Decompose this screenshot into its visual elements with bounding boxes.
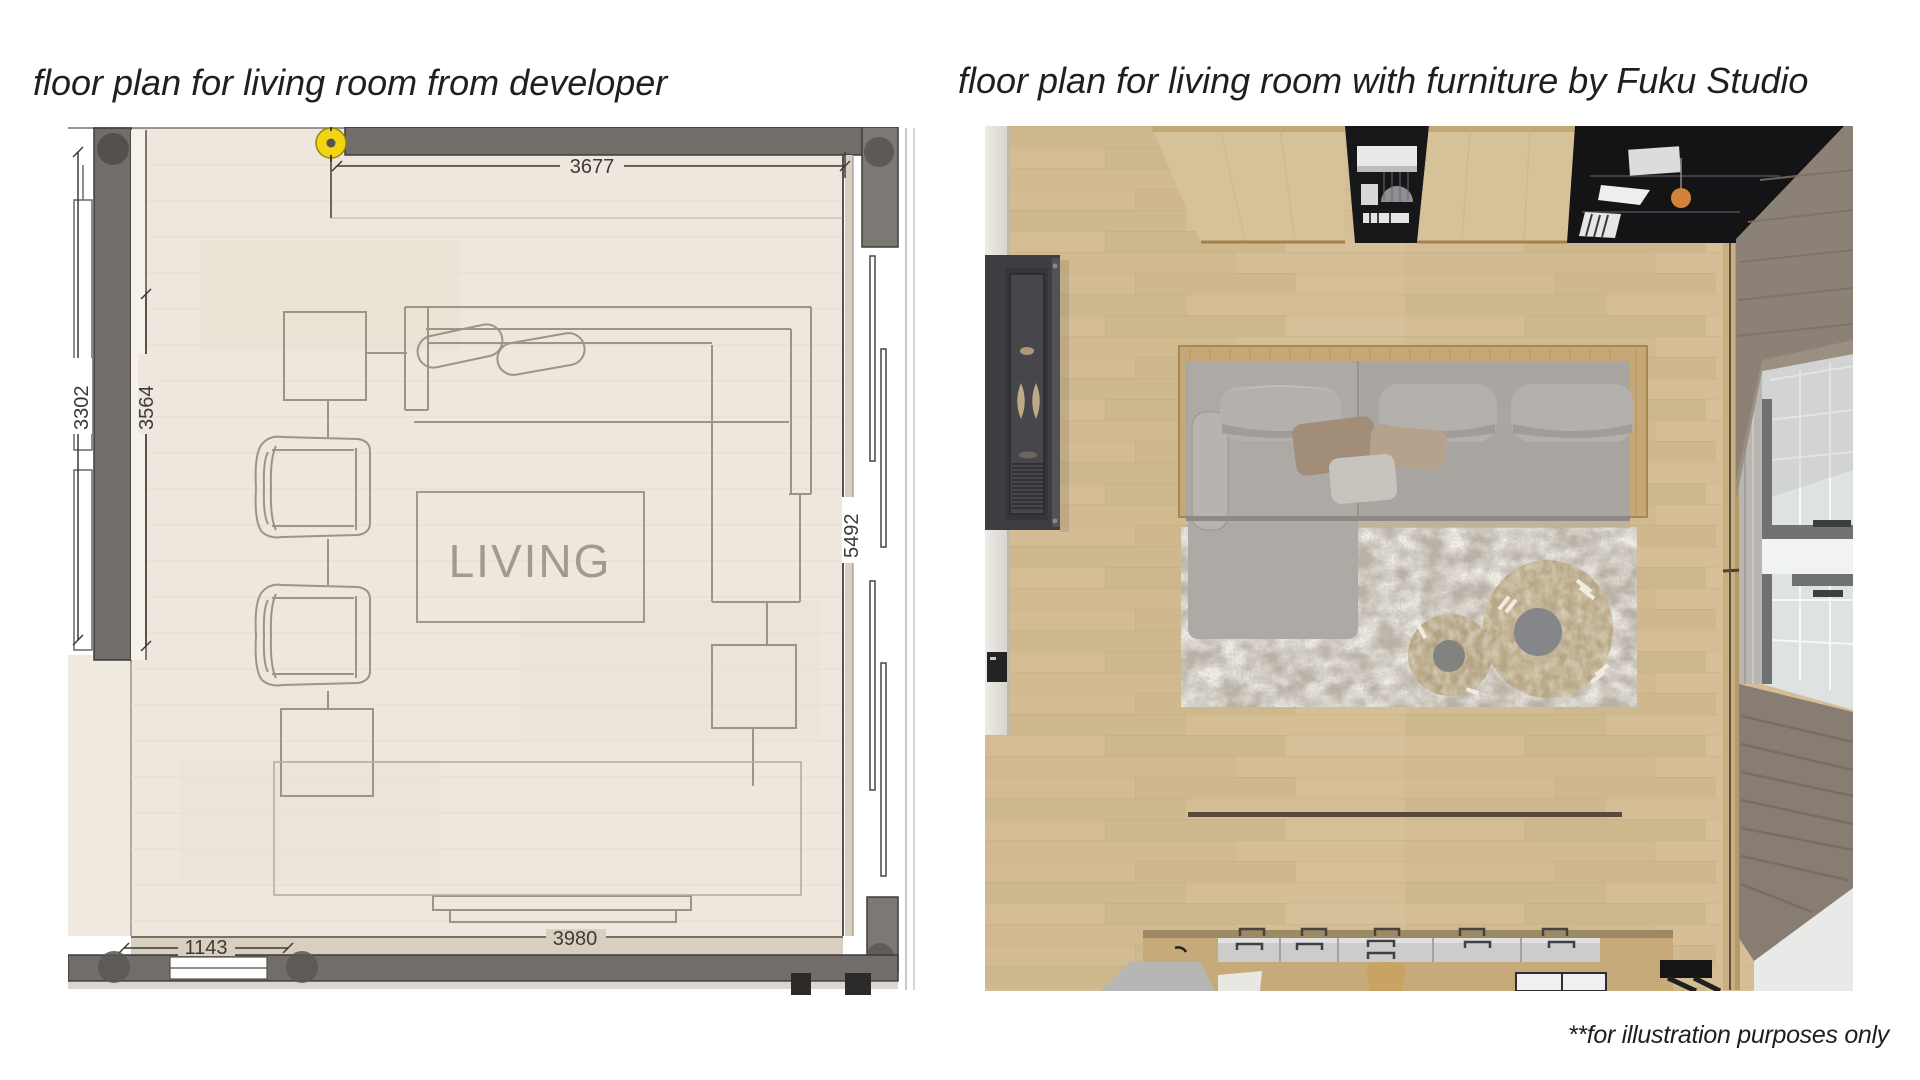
svg-text:LIVING: LIVING: [449, 535, 612, 587]
svg-text:1143: 1143: [184, 937, 227, 959]
svg-text:3564: 3564: [136, 386, 158, 431]
svg-text:3302: 3302: [71, 386, 93, 431]
svg-text:3980: 3980: [553, 928, 598, 950]
svg-text:5492: 5492: [841, 514, 863, 559]
svg-text:3677: 3677: [570, 156, 615, 178]
